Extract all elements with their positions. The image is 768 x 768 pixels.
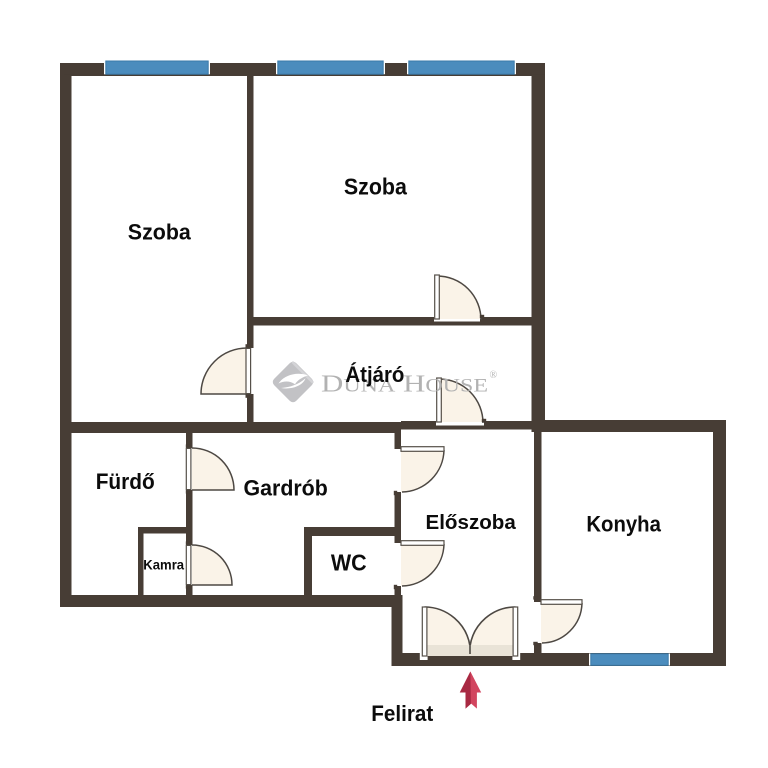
svg-text:®: ® [490, 370, 498, 381]
svg-text:Szoba: Szoba [344, 174, 407, 200]
svg-text:Előszoba: Előszoba [426, 512, 517, 534]
svg-text:Gardrób: Gardrób [244, 476, 328, 501]
svg-text:Átjáró: Átjáró [345, 362, 404, 387]
svg-text:Konyha: Konyha [586, 511, 661, 536]
svg-text:Kamra: Kamra [143, 558, 184, 574]
svg-text:Szoba: Szoba [128, 220, 192, 245]
svg-text:Felirat: Felirat [371, 701, 433, 726]
svg-text:WC: WC [331, 549, 367, 575]
svg-text:Fürdő: Fürdő [96, 469, 155, 494]
